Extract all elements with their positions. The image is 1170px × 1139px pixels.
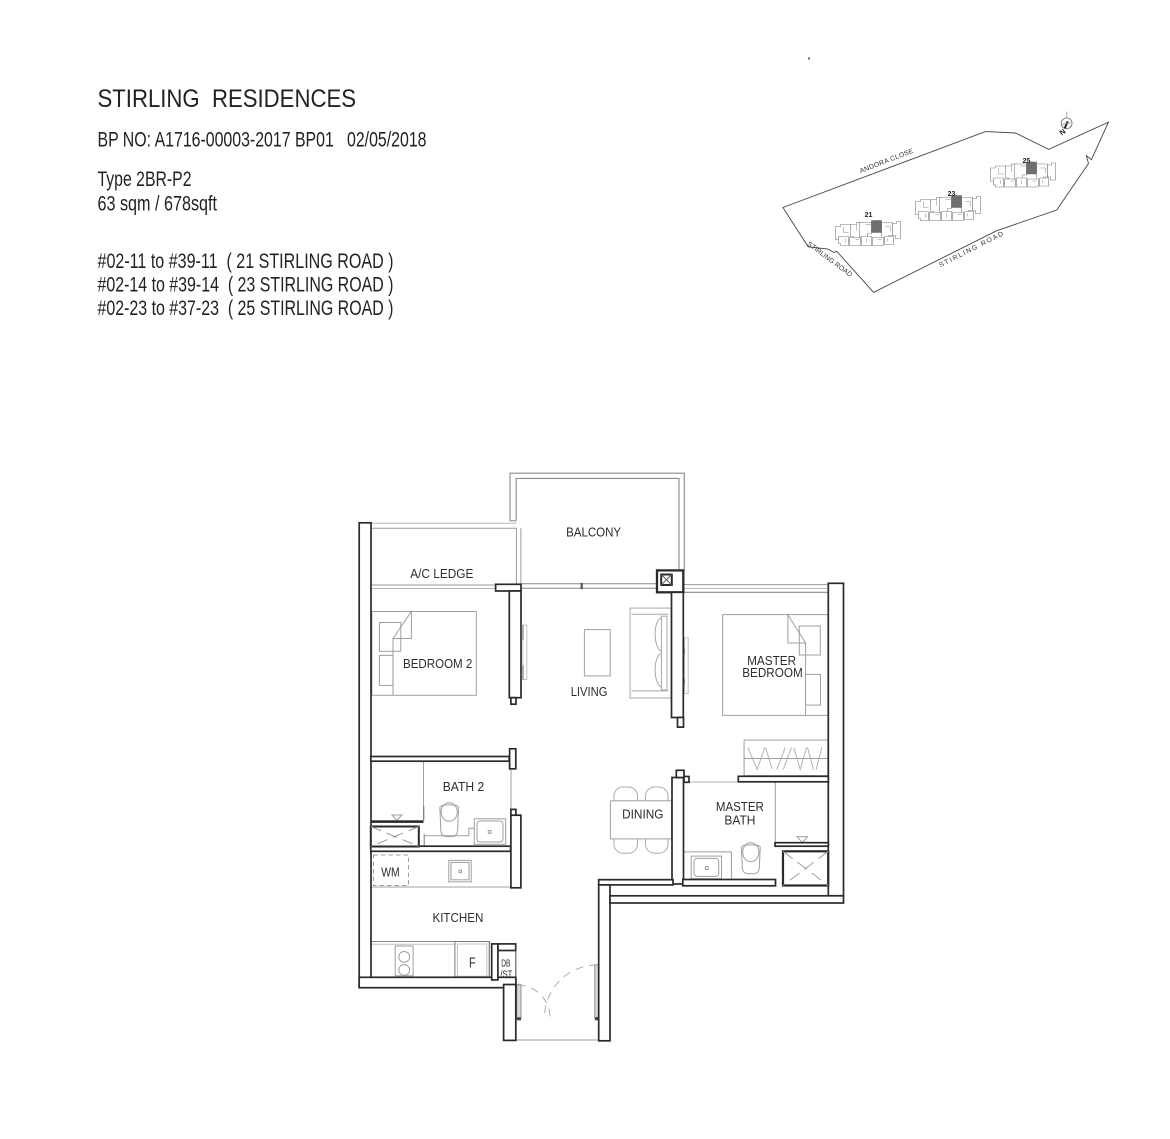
svg-text:BP NO: A1716-00003-2017 BP01: BP NO: A1716-00003-2017 BP01 02/05/2018 [98,129,427,152]
svg-text:63 sqm / 678sqft: 63 sqm / 678sqft [98,193,218,216]
svg-text:STIRLING RESIDENCES: STIRLING RESIDENCES [98,85,357,113]
svg-text:BATH 2: BATH 2 [443,779,485,794]
svg-text:BEDROOM: BEDROOM [742,665,803,680]
svg-text:WM: WM [381,865,399,880]
svg-text:KITCHEN: KITCHEN [433,910,484,925]
svg-text:BALCONY: BALCONY [566,524,621,539]
svg-text:LIVING: LIVING [571,684,608,699]
svg-text:STIRLING ROAD: STIRLING ROAD [806,241,854,279]
svg-text:BATH: BATH [724,812,755,827]
svg-text:Type 2BR-P2: Type 2BR-P2 [98,168,192,191]
svg-text:#02-11 to #39-11 ( 21 STIRLIN: #02-11 to #39-11 ( 21 STIRLING ROAD ) [98,250,394,273]
svg-text:/ST: /ST [500,968,512,980]
svg-text:F: F [469,955,476,971]
svg-text:#02-14 to #39-14 ( 23 STIRLIN: #02-14 to #39-14 ( 23 STIRLING ROAD ) [98,274,394,297]
svg-text:#02-23 to #37-23 ( 25 STIRLIN: #02-23 to #37-23 ( 25 STIRLING ROAD ) [98,297,394,320]
svg-text:21: 21 [865,212,873,219]
svg-text:BEDROOM 2: BEDROOM 2 [403,656,472,671]
svg-text:STIRLING ROAD: STIRLING ROAD [938,231,1005,270]
svg-text:A/C LEDGE: A/C LEDGE [410,566,473,581]
svg-text:23: 23 [948,191,956,198]
svg-text:DINING: DINING [622,806,663,821]
svg-text:25: 25 [1023,158,1031,165]
